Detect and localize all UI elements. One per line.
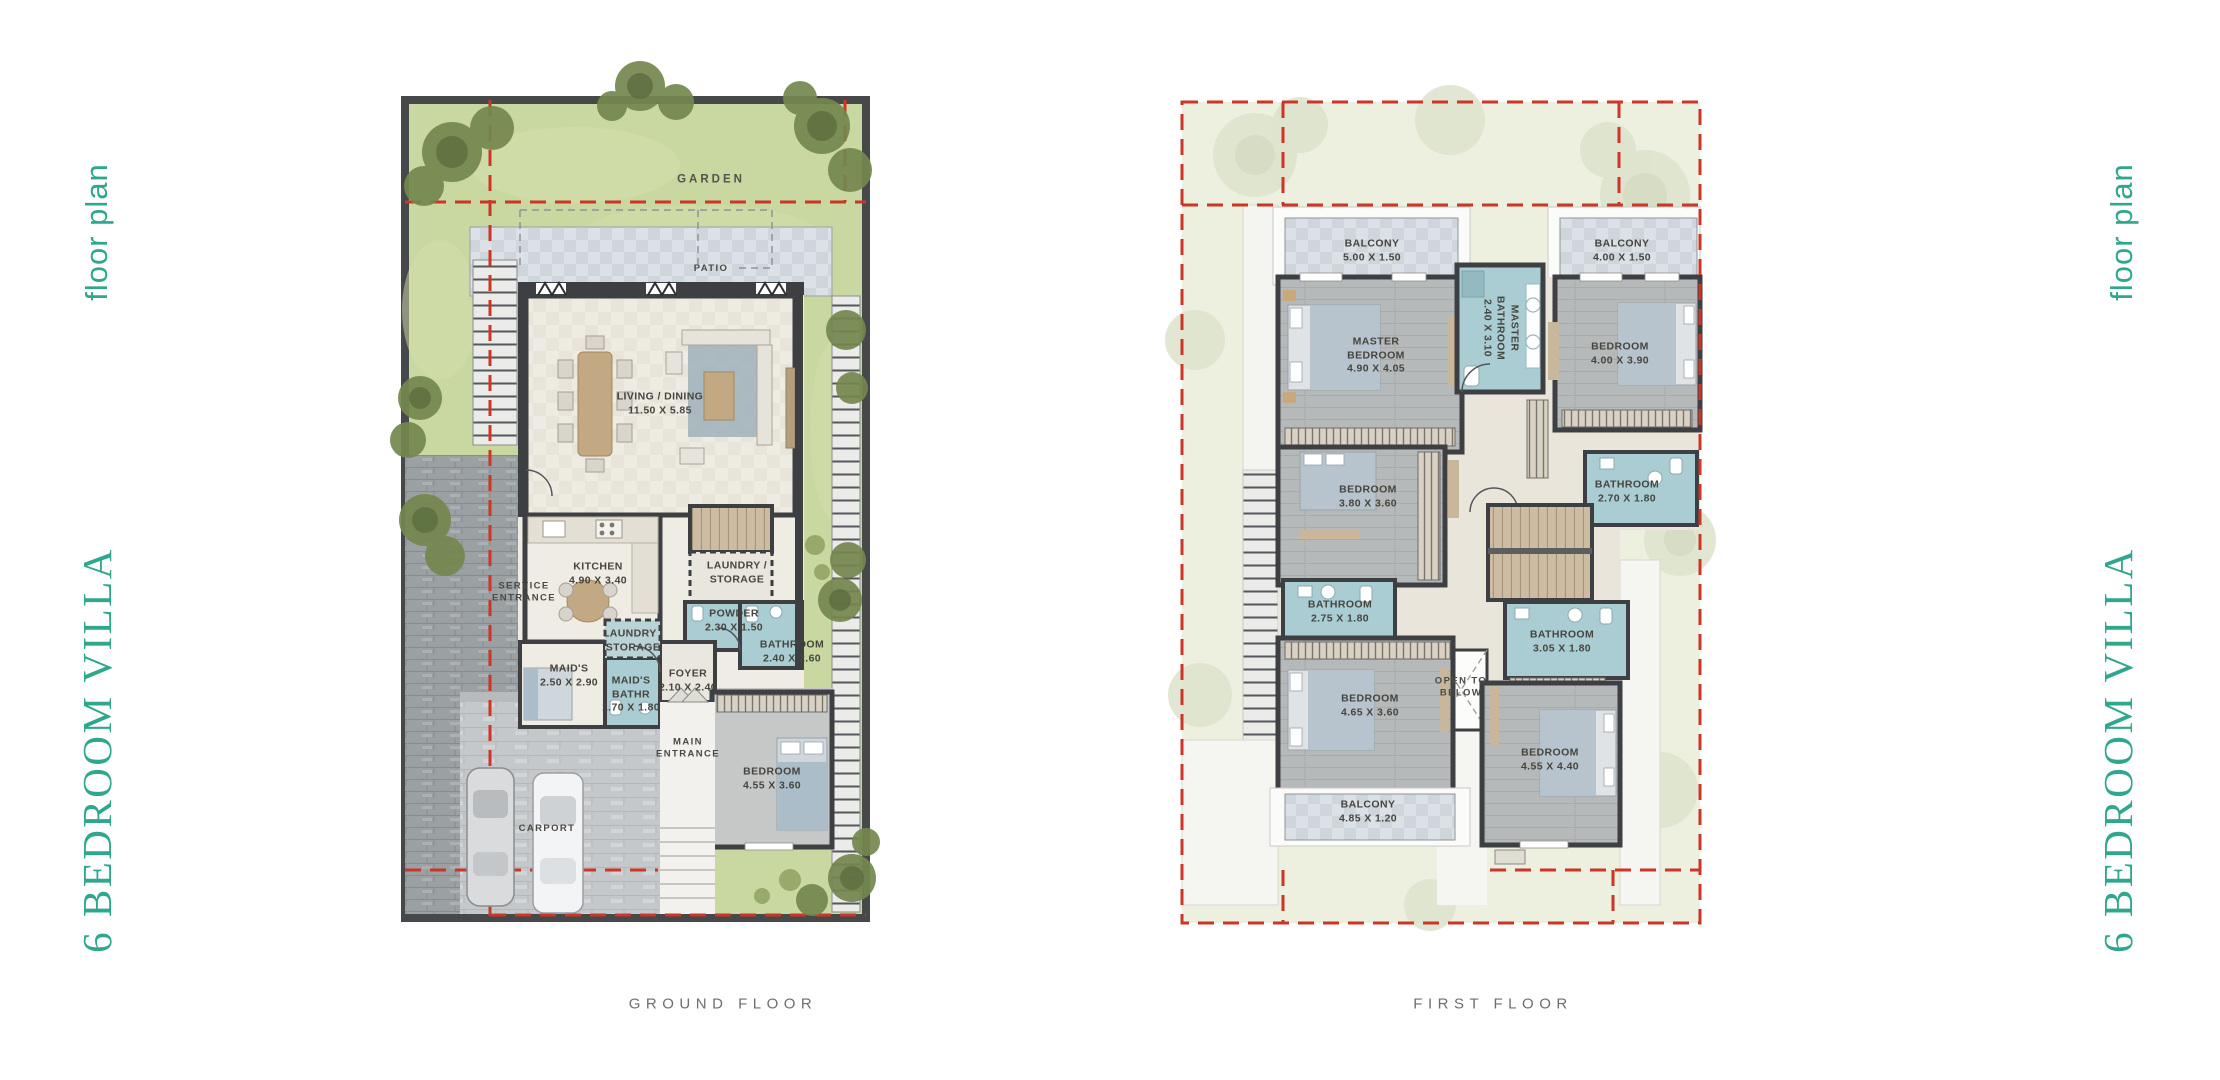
floor-plan-page: floor plan 6 BEDROOM VILLA floor plan 6 … [0,0,2220,1080]
left-villa-title: 6 BEDROOM VILLA [73,547,121,953]
ground-floor-plan [390,61,880,918]
room-label-bedroom: BEDROOM 4.65 X 3.60 [1341,692,1399,719]
first-floor-title: FIRST FLOOR [1413,996,1572,1013]
room-label-bedroom: BEDROOM 3.80 X 3.60 [1339,483,1397,510]
room-label-bathroom: BATHROOM 2.40 X 2.60 [760,638,824,665]
room-label-bedroom: BEDROOM 4.55 X 3.60 [743,765,801,792]
room-label-bathroom: BATHROOM 2.75 X 1.80 [1308,598,1372,625]
room-label-bathroom: BATHROOM 2.70 X 1.80 [1595,478,1659,505]
right-villa-title: 6 BEDROOM VILLA [2094,547,2142,953]
room-label-kitchen: KITCHEN 4.90 X 3.40 [569,560,627,587]
room-label-bedroom: BEDROOM 4.00 X 3.90 [1591,340,1649,367]
left-floor-plan-label: floor plan [79,163,115,301]
first-floor-plan [1165,85,1716,931]
plans-artwork [0,0,2220,1080]
room-label-foyer: FOYER 2.10 X 2.40 [659,667,717,694]
room-label-bathroom: BATHROOM 3.05 X 1.80 [1530,628,1594,655]
room-label-powder: POWDER 2.30 X 1.50 [705,607,763,634]
right-floor-plan-label: floor plan [2104,163,2140,301]
room-label-master: MASTER BATHROOM 2.40 X 3.10 [1480,296,1521,360]
room-label-laundry: LAUNDRY / STORAGE [603,627,663,654]
room-label-laundry: LAUNDRY / STORAGE [707,559,767,586]
room-label-living-dining: LIVING / DINING 11.50 X 5.85 [617,390,704,417]
room-label-service: SERVICE ENTRANCE [492,581,556,606]
ground-floor-title: GROUND FLOOR [629,996,818,1013]
room-label-main: MAIN ENTRANCE [656,737,720,762]
room-label-balcony: BALCONY 5.00 X 1.50 [1343,237,1401,264]
room-label-maid-s: MAID'S 2.50 X 2.90 [540,662,598,689]
room-label-open-to: OPEN TO BELOW [1435,676,1487,701]
room-label-bedroom: BEDROOM 4.55 X 4.40 [1521,746,1579,773]
room-label-maid-s: MAID'S BATHR 1.70 X 1.80 [602,675,660,716]
room-label-master: MASTER BEDROOM 4.90 X 4.05 [1347,336,1405,377]
room-label-garden: GARDEN [677,173,745,188]
room-label-balcony: BALCONY 4.85 X 1.20 [1339,798,1397,825]
room-label-patio: PATIO [694,263,729,275]
room-label-carport: CARPORT [519,823,576,835]
room-label-balcony: BALCONY 4.00 X 1.50 [1593,237,1651,264]
